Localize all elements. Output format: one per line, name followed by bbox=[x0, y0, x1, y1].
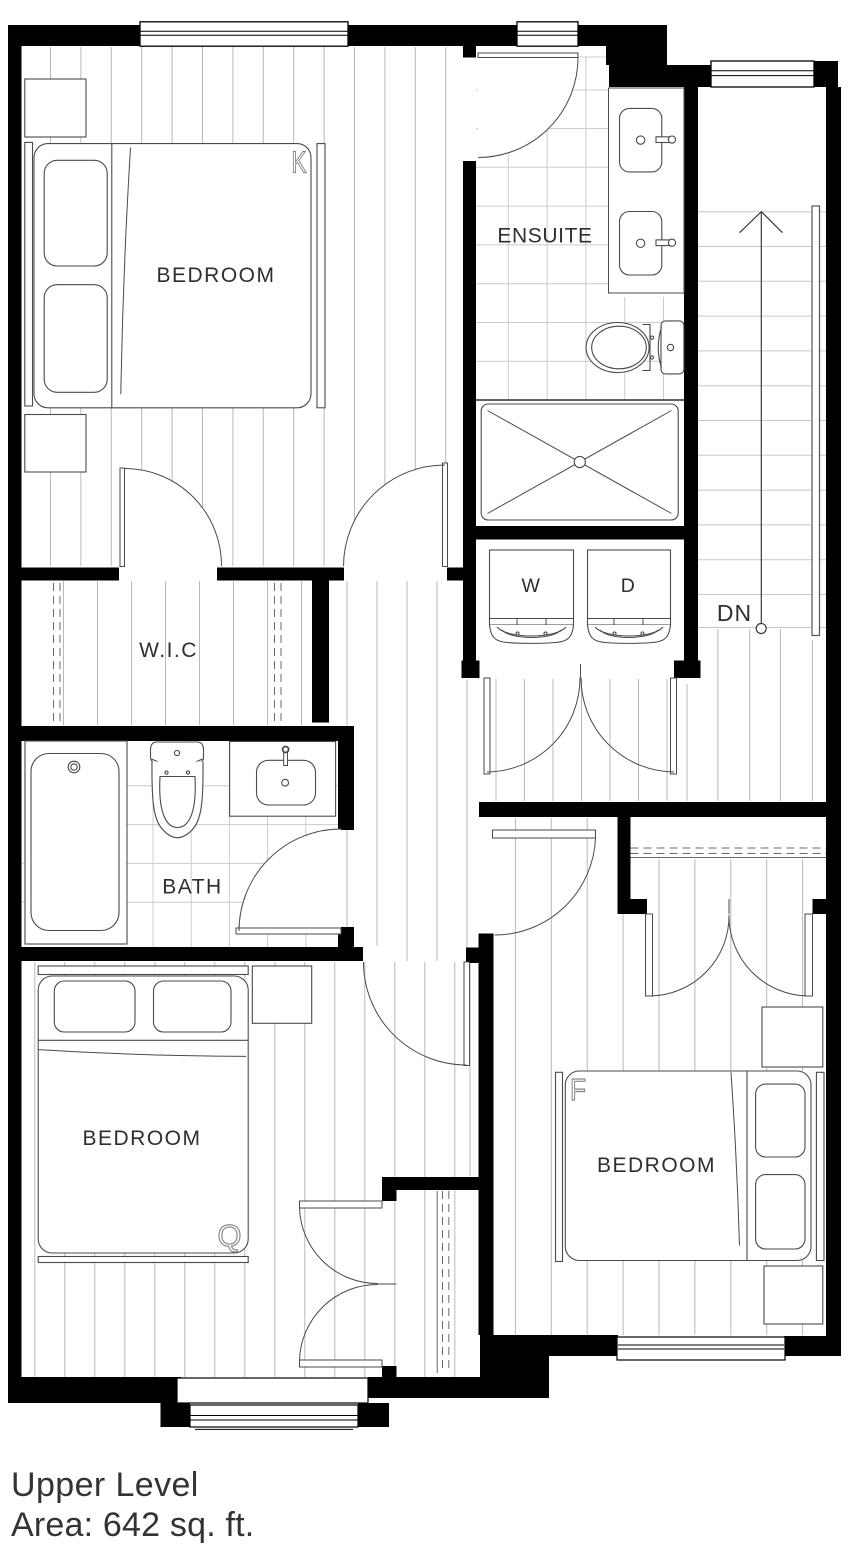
svg-text:BEDROOM: BEDROOM bbox=[82, 1127, 201, 1150]
svg-text:Upper Level: Upper Level bbox=[11, 1466, 199, 1504]
svg-text:DN: DN bbox=[717, 600, 752, 626]
svg-text:Area: 642 sq. ft.: Area: 642 sq. ft. bbox=[11, 1506, 254, 1544]
svg-text:W.I.C: W.I.C bbox=[139, 639, 198, 662]
svg-text:W: W bbox=[522, 575, 542, 597]
svg-text:K: K bbox=[292, 146, 307, 180]
svg-text:BATH: BATH bbox=[162, 876, 222, 899]
svg-text:BEDROOM: BEDROOM bbox=[156, 264, 275, 287]
svg-text:D: D bbox=[621, 575, 637, 597]
svg-text:BEDROOM: BEDROOM bbox=[597, 1154, 716, 1177]
svg-text:ENSUITE: ENSUITE bbox=[497, 225, 592, 248]
svg-text:Q: Q bbox=[218, 1219, 242, 1253]
svg-text:F: F bbox=[570, 1073, 586, 1107]
